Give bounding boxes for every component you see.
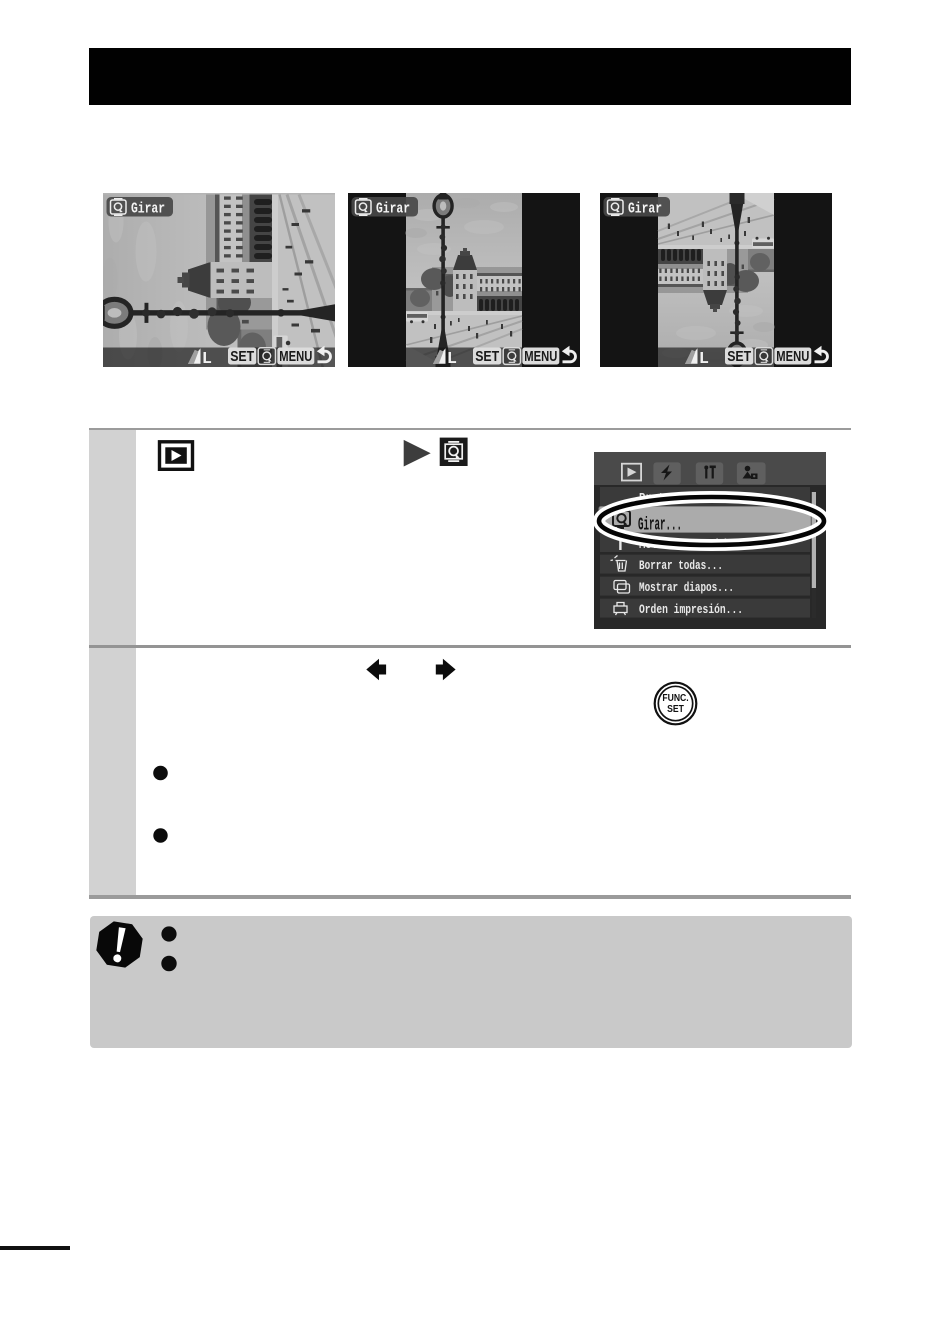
- svg-text:Mostrar diapos...: Mostrar diapos...: [639, 581, 734, 595]
- svg-text:Borrar todas...: Borrar todas...: [639, 559, 723, 573]
- svg-text:Girar...: Girar...: [638, 516, 682, 536]
- svg-text:SET: SET: [667, 703, 684, 714]
- svg-text:Orden impresión...: Orden impresión...: [639, 603, 743, 617]
- svg-text:FUNC.: FUNC.: [662, 692, 688, 703]
